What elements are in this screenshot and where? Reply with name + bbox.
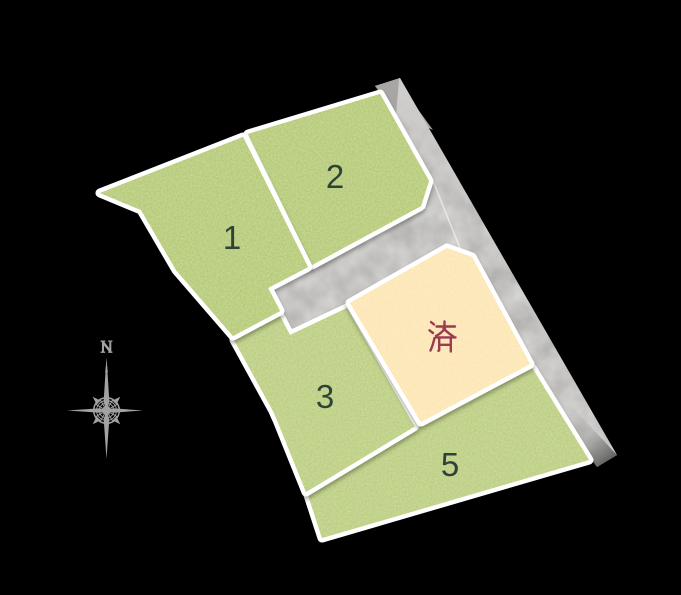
svg-text:5: 5	[441, 446, 459, 483]
svg-text:3: 3	[316, 378, 334, 415]
svg-text:2: 2	[326, 158, 344, 195]
svg-text:1: 1	[223, 219, 241, 256]
